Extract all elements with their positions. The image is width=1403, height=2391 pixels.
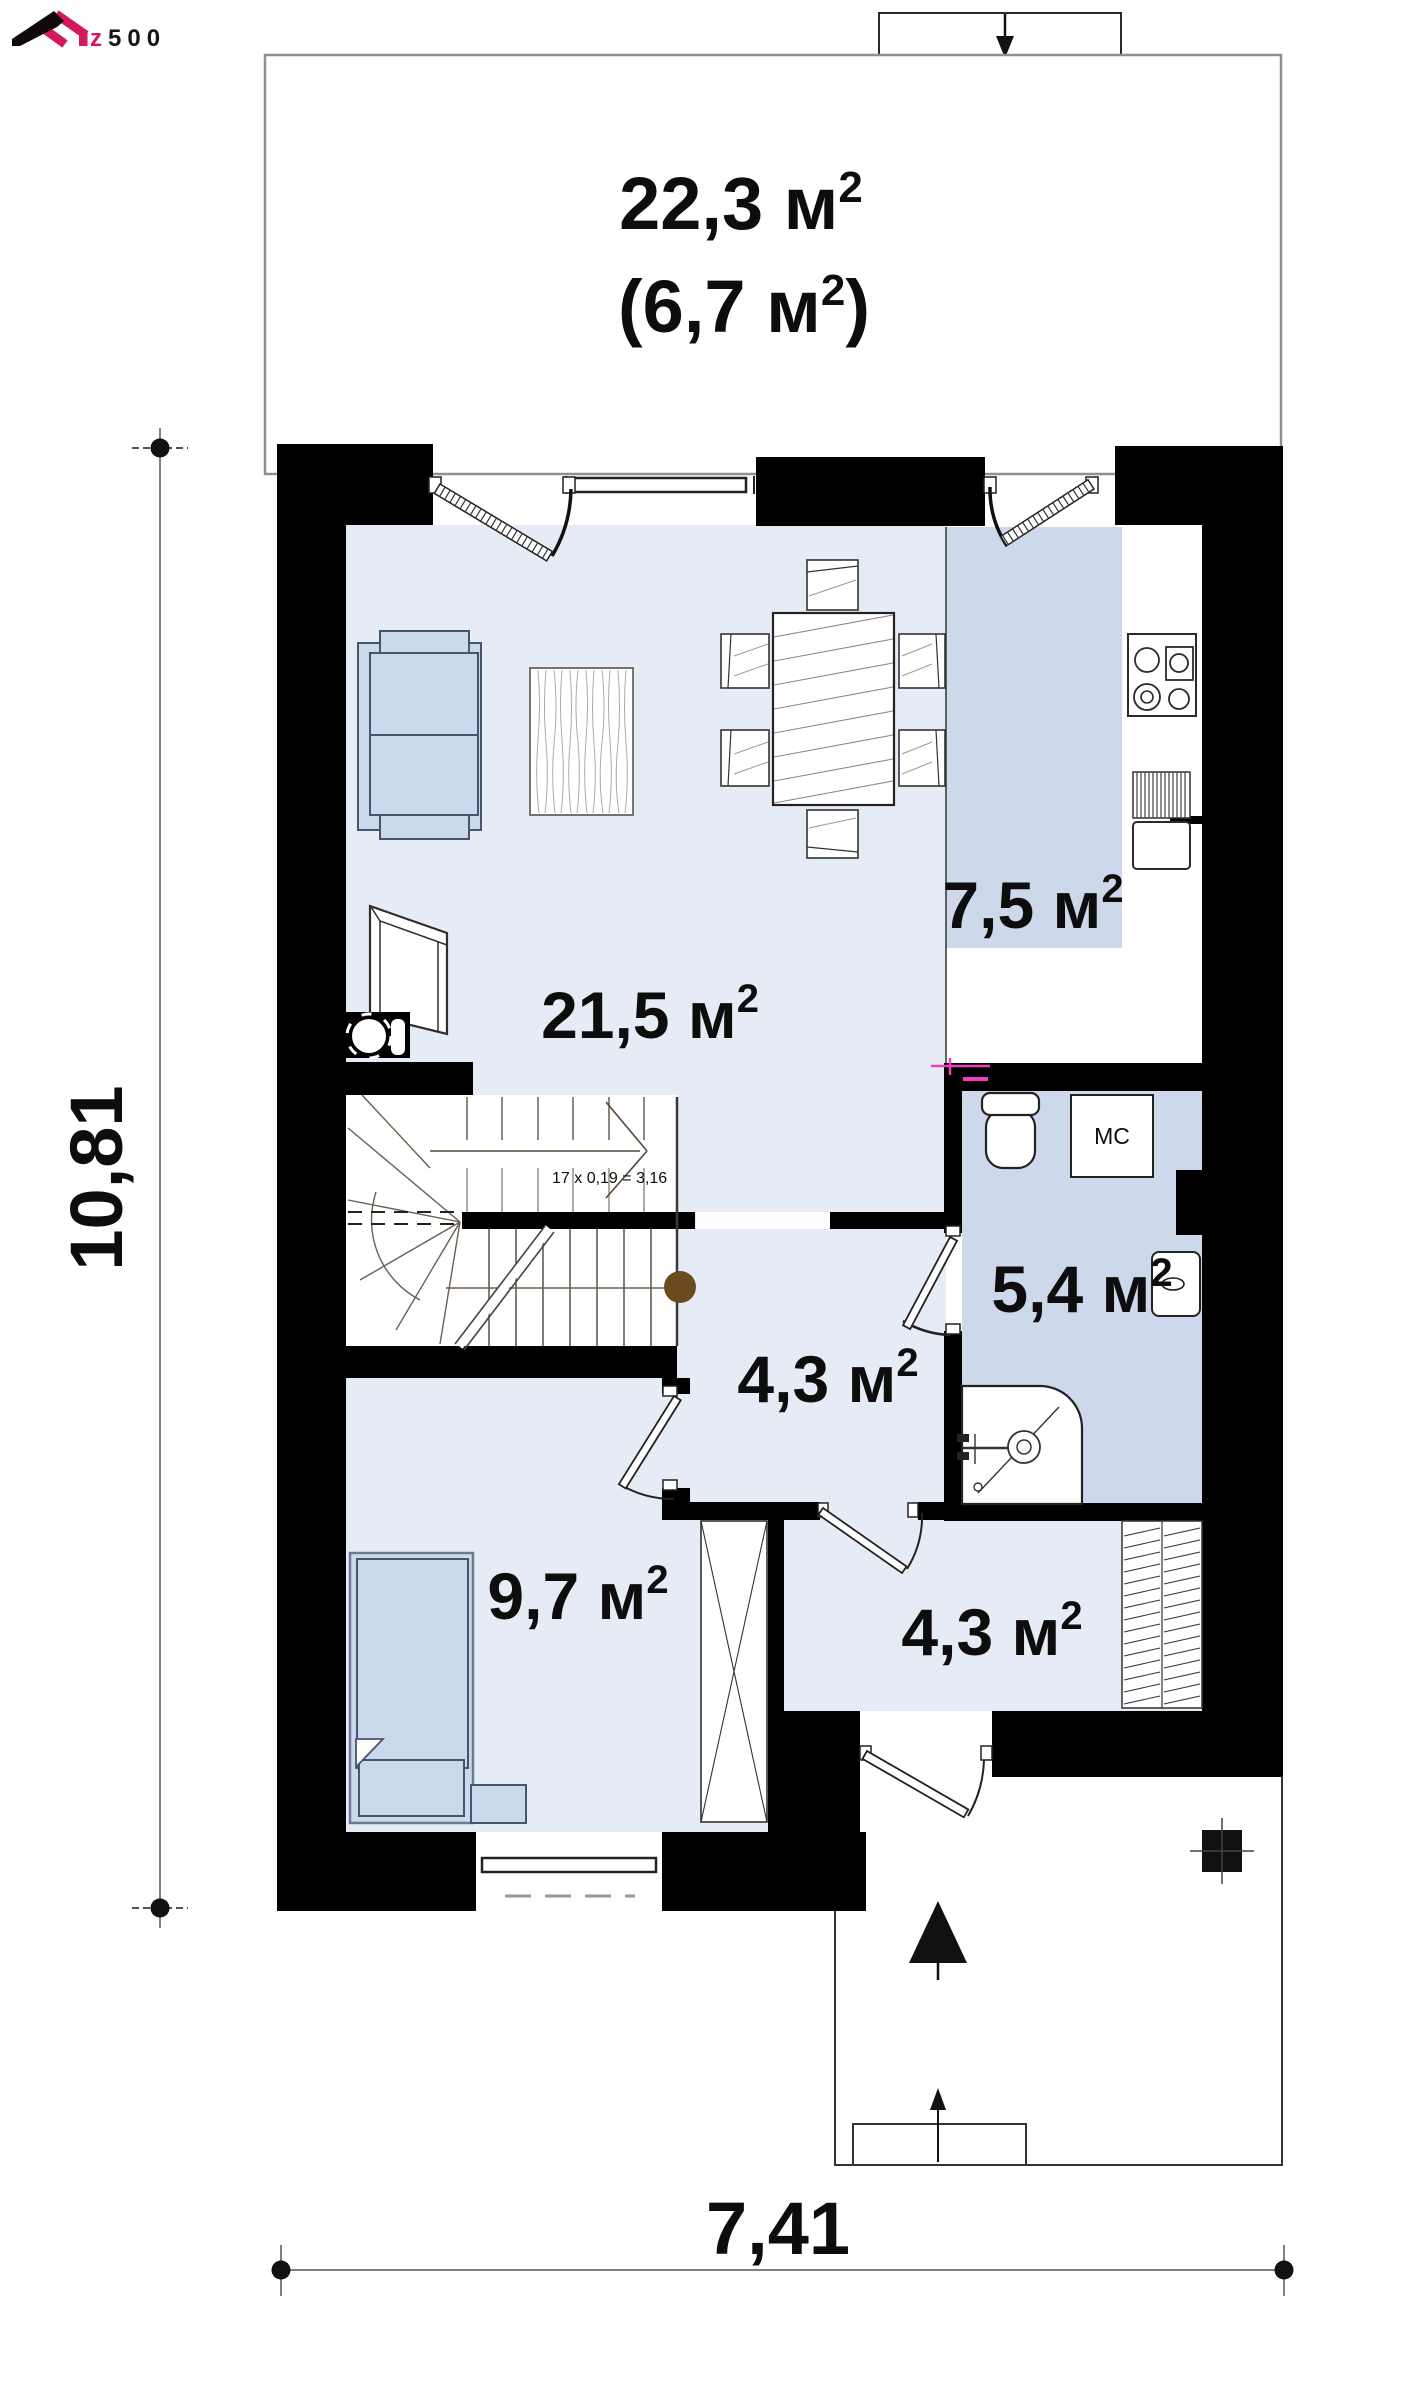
svg-text:МС: МС [1094,1123,1130,1149]
svg-text:9,7 м2: 9,7 м2 [487,1558,668,1633]
svg-text:7,5 м2: 7,5 м2 [942,867,1123,942]
svg-text:5,4 м2: 5,4 м2 [991,1251,1172,1326]
svg-text:21,5 м2: 21,5 м2 [541,977,759,1052]
svg-text:17 x 0,19 = 3,16: 17 x 0,19 = 3,16 [552,1170,667,1187]
svg-text:4,3 м2: 4,3 м2 [901,1594,1082,1669]
svg-text:10,81: 10,81 [55,1085,138,1270]
svg-text:4,3 м2: 4,3 м2 [737,1341,918,1416]
svg-text:z500: z500 [90,25,166,52]
svg-text:7,41: 7,41 [706,2187,850,2270]
svg-text:22,3 м2: 22,3 м2 [619,162,863,245]
